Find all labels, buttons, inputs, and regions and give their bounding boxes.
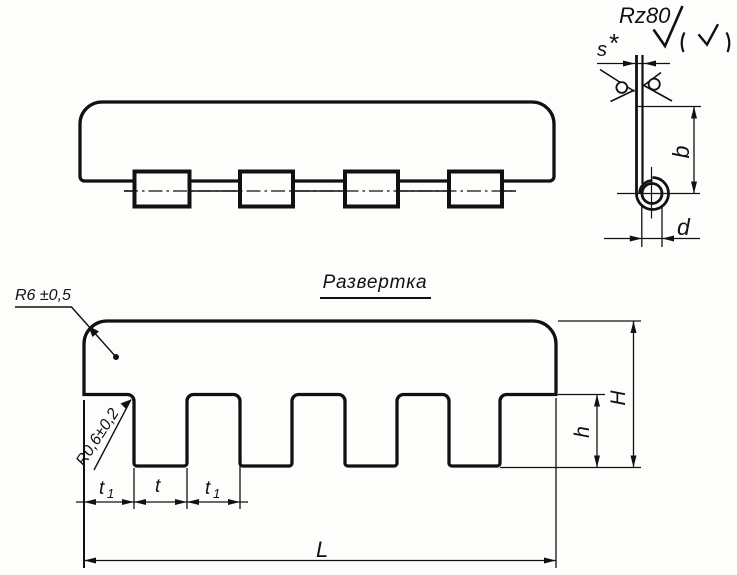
svg-text:t: t [205, 478, 211, 499]
svg-text:s: s [597, 39, 607, 61]
svg-text:*: * [608, 28, 619, 58]
svg-text:h: h [571, 426, 594, 438]
svg-text:H: H [607, 390, 630, 406]
svg-text:R6 ±0,5: R6 ±0,5 [15, 287, 71, 304]
svg-text:t: t [99, 478, 105, 499]
svg-text:d: d [677, 214, 691, 240]
svg-text:1: 1 [107, 486, 114, 501]
svg-text:Rz80: Rz80 [619, 3, 671, 28]
svg-text:b: b [668, 145, 694, 158]
svg-text:t: t [155, 476, 161, 497]
svg-text:L: L [316, 537, 328, 562]
svg-text:1: 1 [213, 486, 220, 501]
svg-text:Развертка: Развертка [323, 272, 428, 293]
